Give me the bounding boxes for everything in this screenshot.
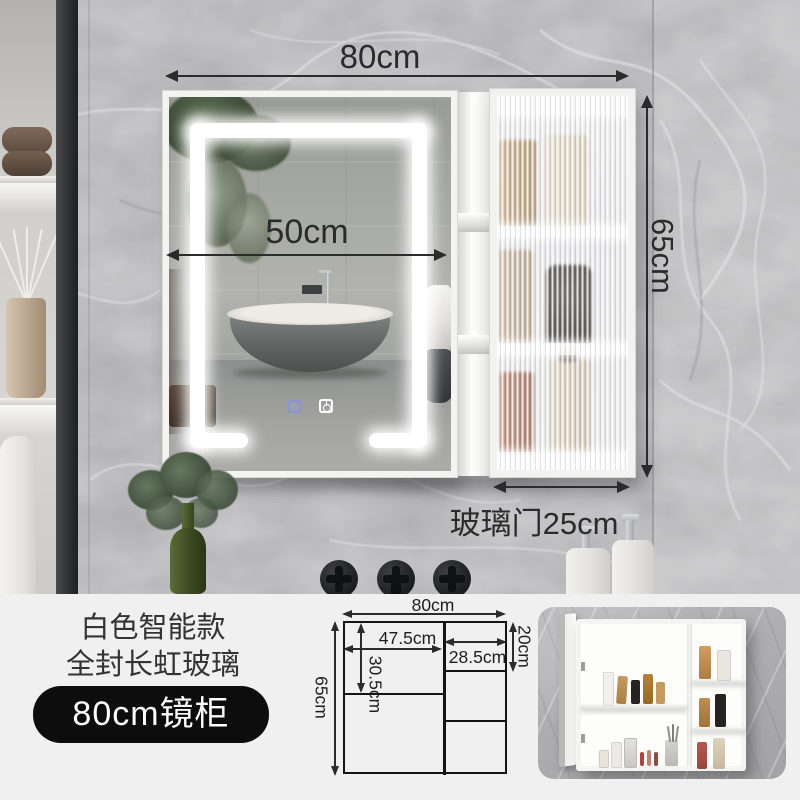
faucet-handle[interactable] bbox=[377, 560, 415, 594]
open-mirror-door bbox=[559, 613, 576, 767]
green-vase-body bbox=[170, 528, 206, 594]
dim-mirror-width-arrow bbox=[168, 254, 445, 256]
dim-glass-door-arrow bbox=[495, 486, 628, 488]
rolled-towel bbox=[2, 127, 52, 153]
bathroom-photo: 80cm 50cm 65cm 玻璃门25cm bbox=[0, 0, 800, 594]
reflected-dark-object bbox=[424, 349, 451, 403]
brush bbox=[672, 724, 674, 742]
compartment-shelf bbox=[458, 213, 489, 232]
hinge bbox=[581, 734, 585, 743]
drawing-total-width-arrow bbox=[344, 613, 504, 615]
interior-divider bbox=[687, 624, 692, 766]
pump-bottle bbox=[715, 694, 726, 727]
drawing-shelf-line bbox=[345, 693, 443, 695]
shelf-light-glow bbox=[0, 183, 56, 213]
mirror-glass bbox=[169, 97, 451, 471]
product-image: 80cm 50cm 65cm 玻璃门25cm 白色智能款 全封长虹玻璃 80cm… bbox=[0, 0, 800, 800]
cabinet-interior bbox=[581, 624, 741, 766]
reed-diffuser-vase bbox=[6, 298, 46, 398]
bottle bbox=[631, 680, 640, 704]
bottle bbox=[643, 674, 653, 704]
size-badge: 80cm镜柜 bbox=[33, 686, 269, 743]
open-cabinet-thumbnail bbox=[538, 607, 786, 779]
product-title-line2: 全封长虹玻璃 bbox=[15, 647, 291, 684]
mirror-door bbox=[162, 90, 458, 478]
led-strip bbox=[190, 433, 248, 448]
reflected-faucet-spout bbox=[327, 273, 330, 303]
hinge bbox=[581, 662, 585, 671]
compartment-shelf bbox=[458, 335, 489, 354]
drawing-shelf-line bbox=[445, 720, 505, 722]
bottle bbox=[603, 672, 614, 706]
drawing-top-shelf-height-label: 20cm bbox=[514, 619, 535, 675]
drawing-total-height-label: 65cm bbox=[311, 663, 332, 733]
interior-shelf bbox=[581, 704, 687, 709]
led-strip bbox=[190, 123, 205, 448]
fluted-glass-texture bbox=[497, 96, 628, 470]
wall-panel-seam bbox=[652, 0, 654, 594]
reflected-bathtub-rim bbox=[227, 303, 393, 325]
faucet-handle[interactable] bbox=[433, 560, 471, 594]
lotion-bottle bbox=[0, 436, 36, 594]
dim-mirror-width-label: 50cm bbox=[227, 213, 387, 252]
diffuser-reed bbox=[26, 227, 28, 299]
pump-bottle bbox=[699, 698, 710, 727]
led-strip bbox=[412, 123, 427, 448]
bottle bbox=[624, 738, 637, 768]
product-title-line1: 白色智能款 bbox=[15, 610, 291, 647]
niche-dark-frame bbox=[56, 0, 78, 594]
dim-total-width-arrow bbox=[167, 75, 627, 77]
niche-shelf bbox=[0, 398, 56, 405]
bottle bbox=[656, 682, 665, 704]
shelf-light-glow bbox=[0, 405, 56, 435]
drawing-shelf-line bbox=[445, 670, 505, 672]
dim-height-arrow bbox=[646, 97, 648, 476]
drawing-glass-width-arrow bbox=[446, 641, 505, 643]
product-title: 白色智能款 全封长虹玻璃 bbox=[15, 610, 291, 684]
drawing-opening-height-arrow bbox=[360, 625, 362, 691]
power-icon[interactable] bbox=[319, 399, 333, 413]
fluted-glass-door bbox=[489, 88, 636, 478]
faucet-handle[interactable] bbox=[320, 560, 358, 594]
defog-icon[interactable] bbox=[288, 400, 301, 413]
lipstick bbox=[647, 750, 651, 766]
dispenser-body bbox=[566, 548, 610, 594]
eucalyptus-leaves bbox=[146, 496, 186, 530]
pump-bottle bbox=[699, 646, 711, 679]
drawing-top-shelf-height-arrow bbox=[512, 624, 514, 670]
wall-panel-seam bbox=[88, 0, 90, 594]
cabinet-body bbox=[576, 619, 746, 771]
lipstick bbox=[640, 752, 644, 766]
spec-panel: 白色智能款 全封长虹玻璃 80cm镜柜 80cm 65cm 47.5cm 30.… bbox=[0, 594, 800, 800]
brush bbox=[675, 726, 679, 742]
drawing-opening-height-label: 30.5cm bbox=[365, 648, 386, 722]
rolled-towel bbox=[2, 151, 52, 176]
dispenser-body bbox=[612, 540, 654, 594]
reflected-faucet bbox=[302, 285, 322, 294]
lipstick bbox=[654, 752, 658, 766]
bottle bbox=[616, 676, 628, 705]
reflected-faucet-spout bbox=[319, 270, 331, 273]
perfume-bottle bbox=[599, 750, 609, 768]
niche-shelf bbox=[0, 176, 56, 183]
dim-glass-door-label: 玻璃门25cm bbox=[424, 498, 644, 543]
bottle bbox=[697, 742, 707, 769]
pump-bottle bbox=[717, 650, 731, 681]
dim-height-label: 65cm bbox=[644, 218, 680, 290]
interior-shelf bbox=[692, 727, 746, 731]
drawing-total-height-arrow bbox=[334, 623, 336, 774]
faucet-lever bbox=[391, 580, 401, 594]
dim-total-width-label: 80cm bbox=[280, 38, 480, 76]
glass-door-interior bbox=[497, 96, 628, 470]
bottle bbox=[611, 742, 622, 768]
led-strip bbox=[369, 433, 427, 448]
led-strip bbox=[190, 123, 427, 138]
pump-bottle bbox=[713, 738, 725, 769]
open-shelf-compartment bbox=[458, 92, 489, 476]
brush-cup bbox=[665, 740, 678, 766]
